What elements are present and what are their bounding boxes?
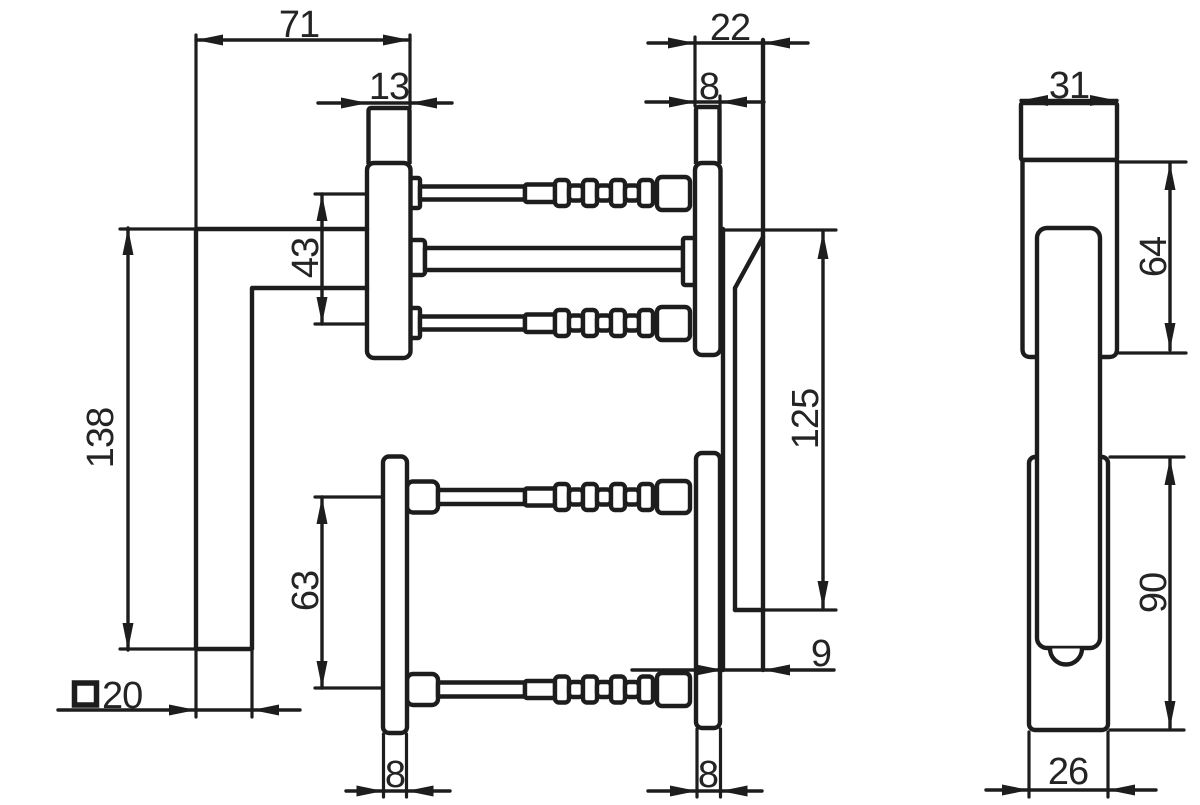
arrowhead [1165, 323, 1176, 350]
arrowhead [669, 97, 696, 108]
spindle-bar [408, 238, 695, 285]
thread-rib [639, 677, 653, 703]
front-view-parts [1021, 103, 1117, 730]
dim-label-26: 26 [1048, 751, 1088, 793]
arrowhead [252, 705, 279, 716]
arrowhead [720, 97, 747, 108]
arrowhead [818, 581, 829, 608]
dim-label-22: 22 [710, 7, 750, 49]
dim-label-31: 31 [1049, 65, 1089, 107]
front-top-cap [1021, 103, 1117, 160]
arrowhead [383, 35, 410, 46]
dim-label-8-left: 8 [385, 754, 405, 796]
arrowhead [1002, 785, 1029, 796]
plate-stem-top-right [696, 107, 720, 164]
dim-label-9: 9 [811, 633, 831, 675]
arrowhead [668, 38, 695, 49]
arrowhead [670, 786, 697, 797]
thread-rib [639, 180, 653, 206]
arrowhead [763, 665, 790, 676]
arrowhead [1165, 701, 1176, 728]
dim-label-138: 138 [80, 408, 122, 468]
handle-grip-outline [196, 229, 367, 649]
arrowhead [317, 661, 328, 688]
rosette-top-left [367, 163, 411, 358]
arrowhead [721, 786, 748, 797]
plate-bottom-right [696, 453, 720, 728]
grip-thumb-notch [1050, 649, 1082, 665]
door-handle-technical-drawing: 71 13 138 43 63 20 8 8 22 8 125 9 31 64 … [0, 0, 1200, 805]
arrowhead [123, 623, 134, 650]
dim-label-63: 63 [285, 571, 327, 611]
dim-label-64: 64 [1133, 236, 1175, 277]
arrowhead [407, 786, 434, 797]
thread-rib [639, 310, 653, 336]
arrowhead [763, 38, 790, 49]
dim-label-125: 125 [785, 389, 827, 449]
arrowhead [818, 232, 829, 259]
dim-label-71: 71 [279, 4, 319, 46]
dim-label-20: 20 [102, 675, 142, 717]
dim-label-8-middle: 8 [698, 754, 718, 796]
outside-cover-profile [723, 40, 763, 670]
arrowhead [169, 705, 196, 716]
dim-label-13: 13 [369, 66, 409, 108]
square-section-symbol [75, 683, 97, 705]
rosette-bottom-left [383, 457, 407, 734]
arrowhead [1165, 163, 1176, 190]
plate-top-right [695, 163, 721, 355]
side-view-parts [196, 40, 763, 733]
dim-label-90: 90 [1133, 573, 1175, 613]
thread-rib [639, 484, 653, 510]
dim-label-8-top: 8 [699, 66, 719, 108]
arrowhead [357, 786, 384, 797]
arrowhead [123, 228, 134, 255]
arrowhead [317, 497, 328, 524]
arrowhead [410, 98, 437, 109]
front-handle-grip [1037, 228, 1100, 648]
arrowhead [196, 35, 223, 46]
arrowhead [317, 297, 328, 324]
arrowhead [341, 98, 368, 109]
arrowhead [1108, 785, 1135, 796]
dim-label-43: 43 [285, 238, 327, 278]
arrowhead [1165, 458, 1176, 485]
rosette-stem-top-left [369, 108, 410, 164]
arrowhead [317, 194, 328, 221]
